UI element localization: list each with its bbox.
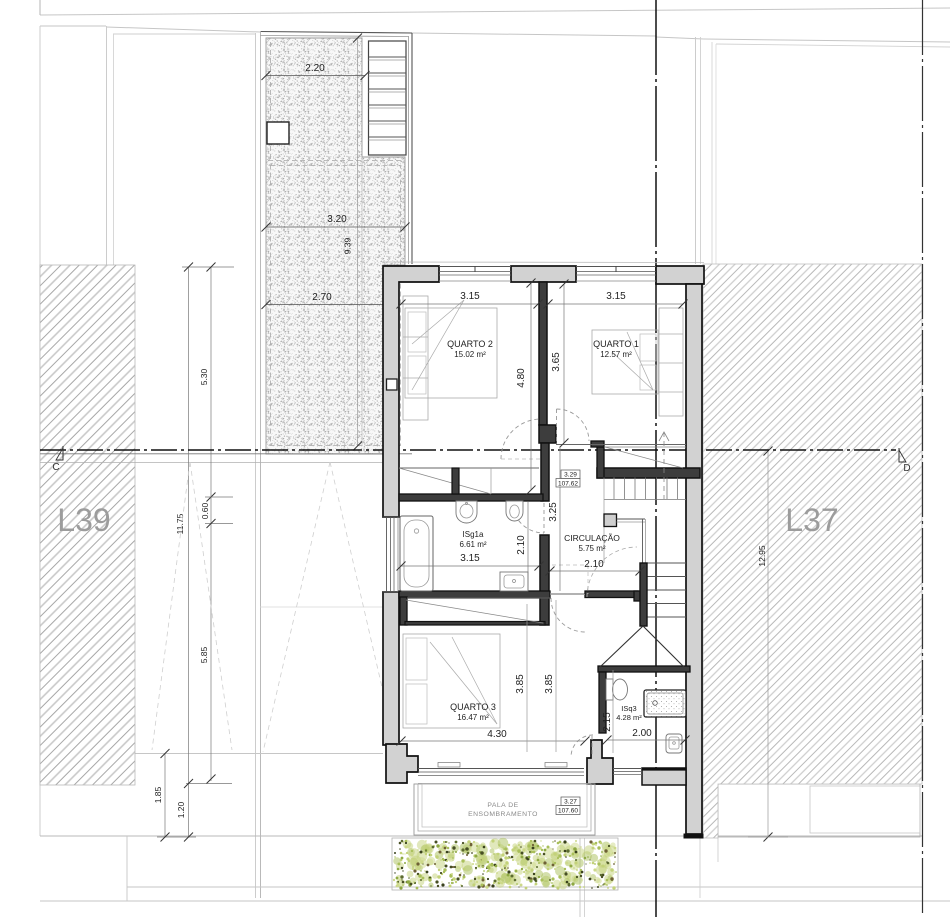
svg-text:2.00: 2.00 — [632, 728, 652, 739]
svg-text:D: D — [903, 463, 910, 474]
svg-text:1.85: 1.85 — [153, 786, 163, 803]
svg-text:PALA DE: PALA DE — [487, 802, 518, 809]
svg-text:16.47 m²: 16.47 m² — [457, 713, 489, 722]
svg-text:5.30: 5.30 — [199, 368, 209, 385]
svg-text:QUARTO 1: QUARTO 1 — [593, 339, 639, 349]
svg-text:0.60: 0.60 — [200, 502, 210, 519]
svg-text:3.15: 3.15 — [606, 291, 626, 302]
svg-text:12.57 m²: 12.57 m² — [600, 350, 632, 359]
svg-text:2.15: 2.15 — [602, 712, 613, 732]
svg-text:1.20: 1.20 — [176, 801, 186, 818]
svg-text:2.10: 2.10 — [516, 535, 527, 555]
svg-text:12.95: 12.95 — [757, 545, 767, 567]
svg-text:ISq3: ISq3 — [621, 704, 636, 713]
svg-text:4.30: 4.30 — [487, 729, 507, 740]
svg-text:3.15: 3.15 — [460, 553, 480, 564]
svg-text:4.28 m²: 4.28 m² — [616, 713, 642, 722]
svg-text:QUARTO 2: QUARTO 2 — [447, 339, 493, 349]
svg-text:3.25: 3.25 — [548, 502, 559, 522]
svg-text:5.75 m²: 5.75 m² — [578, 544, 605, 553]
svg-text:3.85: 3.85 — [544, 674, 555, 694]
svg-text:3.15: 3.15 — [460, 291, 480, 302]
svg-text:L39: L39 — [57, 502, 110, 538]
svg-text:3.85: 3.85 — [515, 674, 526, 694]
svg-text:5.85: 5.85 — [199, 646, 209, 663]
svg-text:QUARTO 3: QUARTO 3 — [450, 702, 496, 712]
svg-text:CIRCULAÇÃO: CIRCULAÇÃO — [564, 533, 620, 543]
svg-text:9.39: 9.39 — [343, 237, 353, 254]
svg-text:107.60: 107.60 — [558, 808, 578, 815]
svg-text:L37: L37 — [785, 502, 838, 538]
svg-text:3.27: 3.27 — [564, 799, 577, 806]
svg-text:3.29: 3.29 — [564, 472, 577, 479]
svg-text:2.70: 2.70 — [312, 292, 332, 303]
svg-text:15.02 m²: 15.02 m² — [454, 350, 486, 359]
svg-text:107.62: 107.62 — [558, 481, 578, 488]
svg-text:3.20: 3.20 — [327, 214, 347, 225]
svg-text:11.75: 11.75 — [175, 513, 185, 534]
svg-text:3.65: 3.65 — [551, 352, 562, 372]
svg-text:2.20: 2.20 — [305, 63, 325, 74]
svg-text:C: C — [52, 462, 59, 473]
svg-text:ENSOMBRAMENTO: ENSOMBRAMENTO — [468, 811, 538, 818]
svg-text:ISg1a: ISg1a — [463, 530, 484, 539]
svg-text:6.61 m²: 6.61 m² — [459, 540, 486, 549]
svg-text:2.10: 2.10 — [584, 559, 604, 570]
svg-text:4.80: 4.80 — [516, 368, 527, 388]
